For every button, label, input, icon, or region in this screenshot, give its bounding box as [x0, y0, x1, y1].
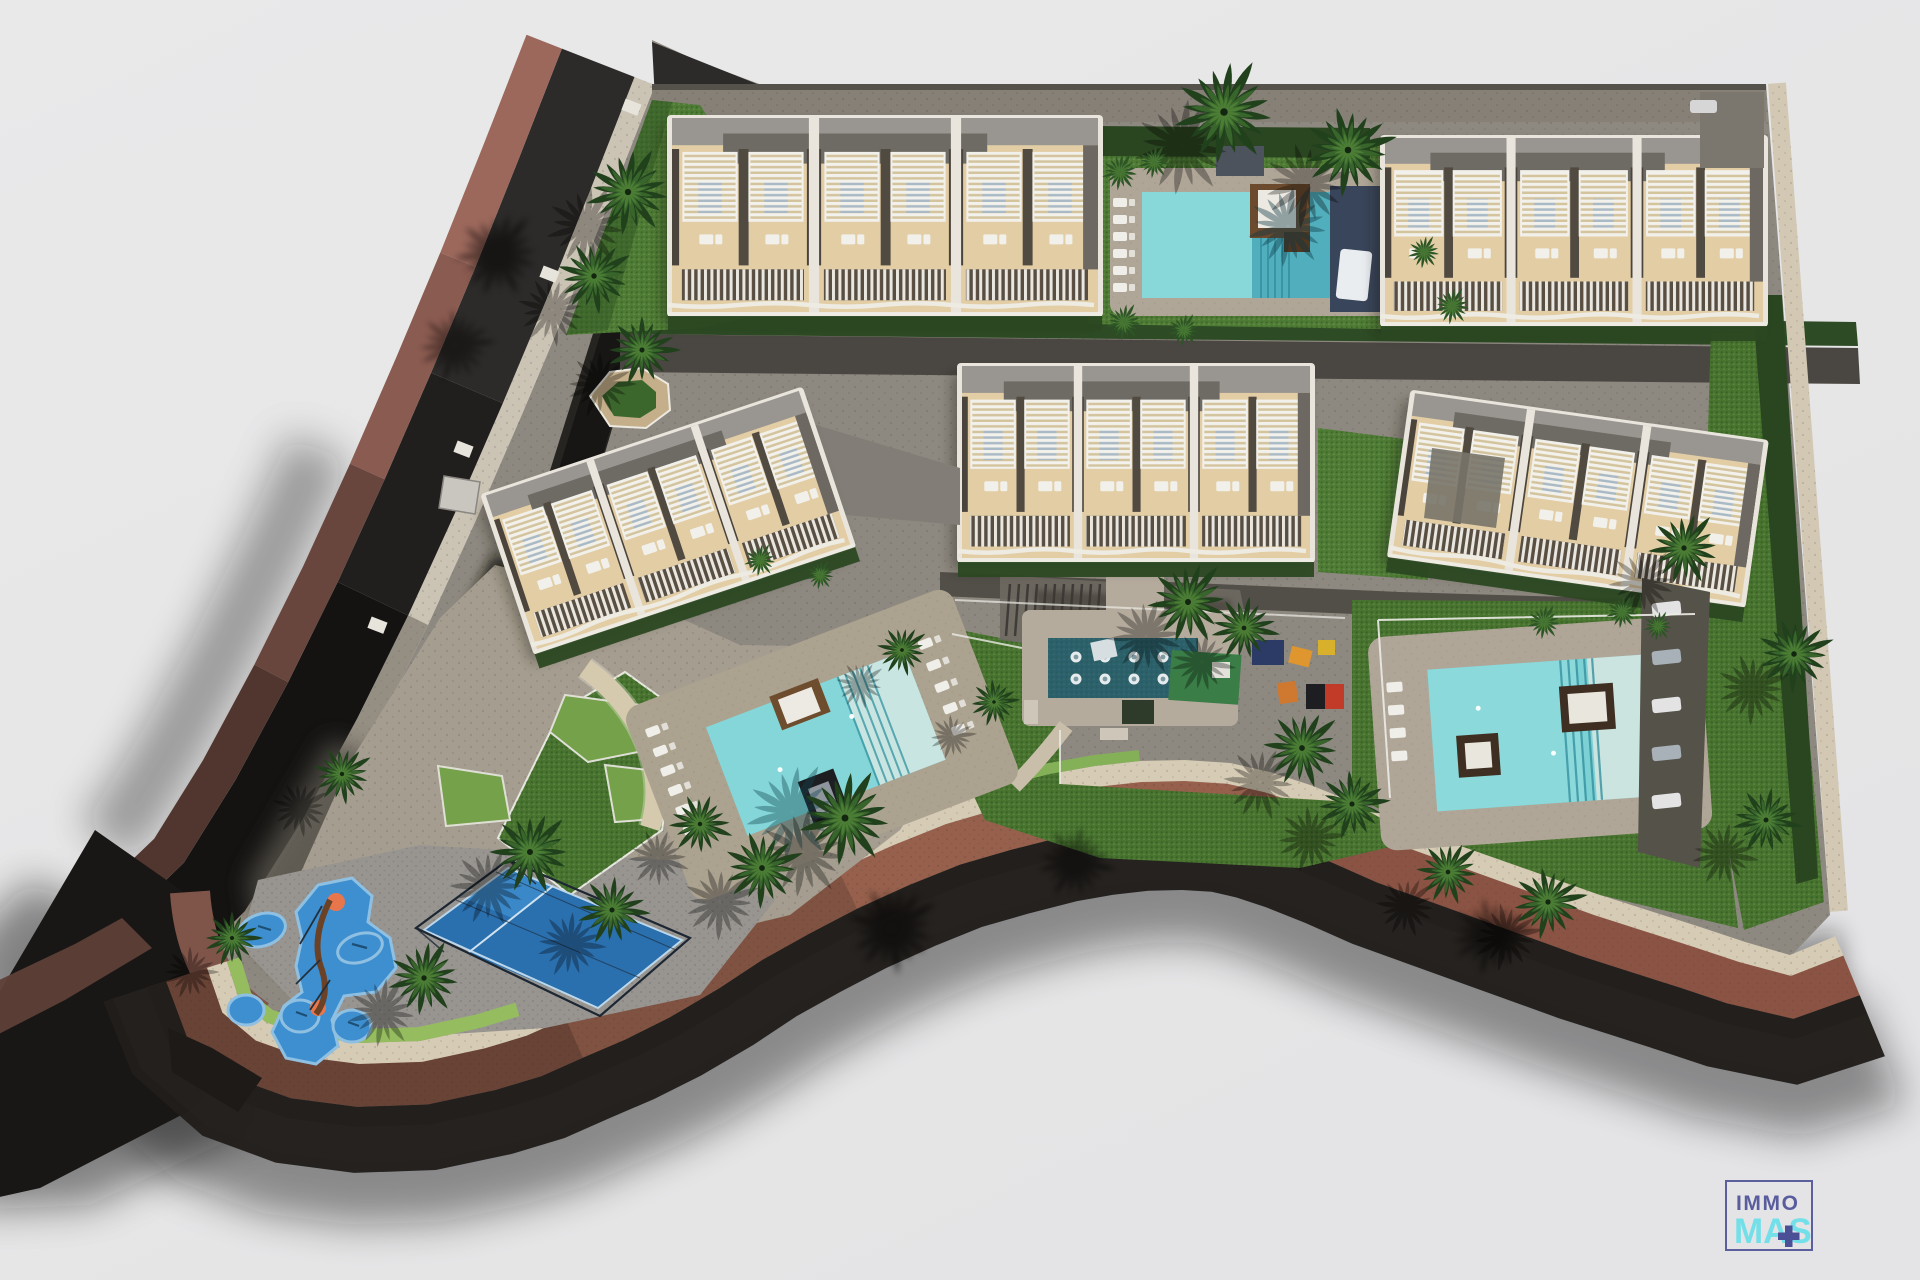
svg-text:MAS: MAS	[1734, 1212, 1812, 1251]
